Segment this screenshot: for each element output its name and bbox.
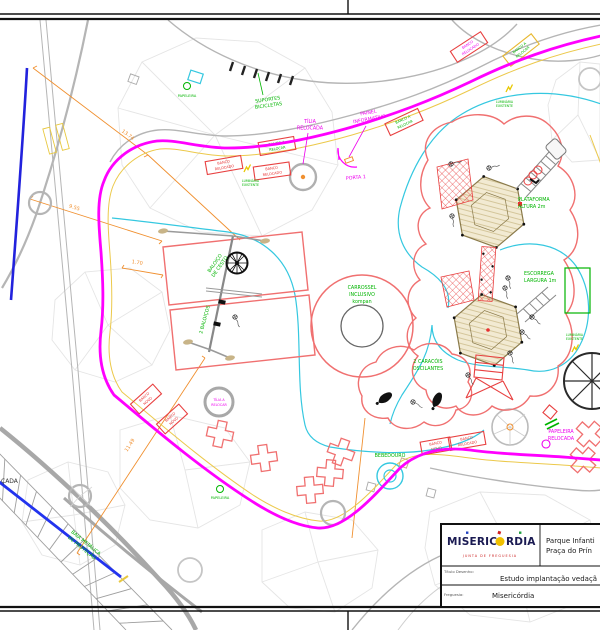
bike-racks	[230, 62, 293, 85]
papeleira-label: PAPELEIRA	[178, 94, 197, 98]
svg-text:RELOCAR: RELOCAR	[211, 403, 227, 407]
utility-box	[188, 70, 203, 84]
svg-text:RDIA: RDIA	[506, 536, 536, 548]
bench-box-relocado: BANCORELOCADO	[205, 155, 243, 174]
play-crosses	[205, 416, 600, 504]
svg-text:RELOCADA: RELOCADA	[548, 436, 575, 442]
tilia-a-relocar: TÍLIA A RELOCAR	[205, 388, 233, 416]
carrossel-label: CARROSSEL INCLUSIVO kompan	[348, 285, 377, 305]
escorrega-label: ESCORREGA LARGURA 1m	[524, 271, 557, 284]
svg-text:TÍLIA A: TÍLIA A	[212, 397, 225, 402]
climbing-net	[437, 159, 473, 209]
bench-box-novo: BANCONOVO	[131, 384, 162, 414]
project-title-line1: Parque Infanti	[546, 537, 595, 545]
org-subtitle: JUNTA DE FREGUESIA	[462, 554, 517, 558]
svg-text:MISERIC: MISERIC	[447, 536, 497, 548]
bebedouro-label: BEBEDOURO	[375, 453, 406, 459]
papeleira-relocada-label: PAPELEIRA RELOCADA	[548, 429, 575, 442]
play-equipment	[158, 115, 600, 504]
gate-porta-1	[338, 148, 357, 167]
swing-safety-area-2	[170, 295, 315, 370]
svg-text:EXISTENTE: EXISTENTE	[242, 183, 259, 187]
spring-riders-safety-zone	[358, 344, 471, 429]
drinking-fountain	[377, 458, 409, 489]
basket-swing-wheel	[227, 253, 248, 274]
svg-text:TÍLIA: TÍLIA	[303, 118, 316, 125]
dimension-lines: 13.74 9.55 1.70 11.49	[30, 66, 365, 555]
blue-protection-line-lower	[0, 481, 121, 577]
project-title-line2: Praça do Prín	[546, 547, 592, 555]
site-plan-drawing: 13.74 9.55 1.70 11.49	[0, 0, 600, 630]
dois-baloicos-label: 2 BALOIÇOS	[198, 305, 211, 335]
plan-sheet: 13.74 9.55 1.70 11.49	[0, 0, 600, 630]
svg-text:ALTURA 2m: ALTURA 2m	[518, 204, 546, 210]
parish-label: Freguesia:	[444, 592, 464, 597]
parish-value: Misericórdia	[492, 592, 534, 600]
svg-text:EXISTENTE: EXISTENTE	[496, 104, 513, 108]
svg-text:CARROSSEL: CARROSSEL	[348, 285, 377, 291]
drawing-title: Estudo implantação vedaçã	[500, 575, 597, 583]
blue-protection-line-upper	[11, 68, 27, 300]
svg-text:RELOCADA: RELOCADA	[297, 126, 324, 132]
svg-text:PLATAFORMA: PLATAFORMA	[518, 197, 550, 203]
dimension-label-1-70: 1.70	[131, 259, 143, 267]
plataforma-label: PLATAFORMA ALTURA 2m	[518, 197, 550, 210]
suportes-bicicletas-label: SUPORTES BICICLETAS	[254, 95, 283, 111]
spring-rider-snail	[374, 390, 394, 408]
svg-text:PAPELEIRA: PAPELEIRA	[548, 429, 574, 435]
title-block: MISERIC RDIA JUNTA DE FREGUESIA Parque I…	[441, 524, 600, 607]
porta-1-label: PORTA 1	[346, 174, 367, 182]
swing-structure	[158, 228, 271, 362]
svg-text:LARGURA 1m: LARGURA 1m	[524, 278, 557, 284]
tilia-relocada-label: TÍLIA RELOCADA	[297, 118, 324, 132]
svg-text:ESCORREGA: ESCORREGA	[524, 271, 555, 277]
bench-box-relocado: BANCORELOCADO	[253, 162, 290, 180]
svg-text:2 CARACÓIS: 2 CARACÓIS	[413, 358, 442, 365]
rope-climber	[478, 247, 496, 302]
svg-text:OSCILANTES: OSCILANTES	[413, 366, 443, 372]
luminaria-existente-2: LUMINÁRIA EXISTENTE	[242, 165, 260, 188]
svg-text:EXISTENTE: EXISTENTE	[566, 337, 583, 341]
papeleira-label: PAPELEIRA	[211, 496, 230, 500]
calcada-label: ÇADA	[1, 478, 19, 485]
slide	[517, 287, 556, 322]
drawing-title-label: Título Desenho:	[443, 569, 474, 574]
svg-text:kompan: kompan	[352, 299, 371, 305]
dimension-label-9-55: 9.55	[68, 204, 80, 213]
caracois-label: 2 CARACÓIS OSCILANTES	[413, 358, 443, 372]
svg-text:INCLUSIVO: INCLUSIVO	[349, 292, 375, 298]
climbing-net	[441, 271, 474, 307]
dimension-label-11-49: 11.49	[124, 438, 137, 453]
